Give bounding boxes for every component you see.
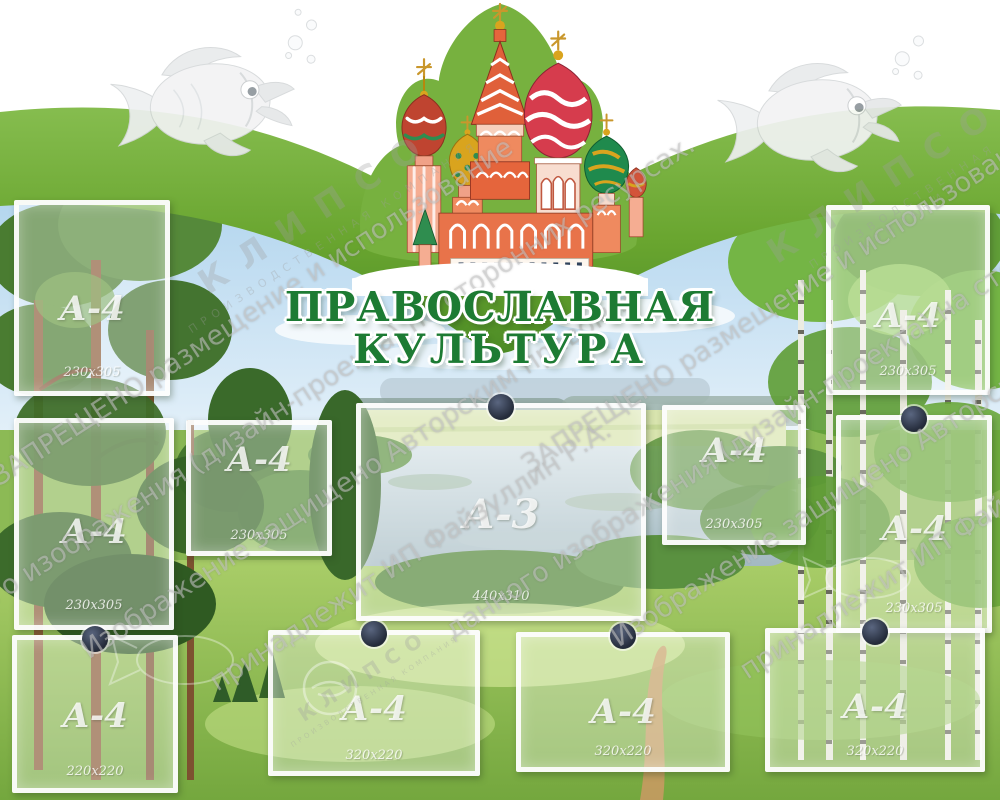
pocket-mid-right: А-4 230x305 bbox=[662, 405, 806, 545]
hole-icon bbox=[488, 394, 514, 420]
hole-icon bbox=[862, 619, 888, 645]
pocket-dimensions: 320x220 bbox=[770, 744, 980, 759]
pocket-dimensions: 220x220 bbox=[17, 764, 173, 779]
pocket-dimensions: 230x305 bbox=[191, 528, 327, 543]
pocket-format-label: А-4 bbox=[667, 431, 801, 471]
stand-design-canvas: А-4 230x305 А-4 230x305 А-4 230x305 А-3 … bbox=[0, 0, 1000, 800]
pocket-top-right: А-4 230x305 bbox=[826, 205, 990, 395]
pocket-dimensions: 320x220 bbox=[273, 748, 475, 763]
pocket-dimensions: 230x305 bbox=[831, 364, 985, 379]
pocket-bottom-3: А-4 320x220 bbox=[516, 632, 730, 772]
pocket-format-label: А-4 bbox=[19, 289, 165, 329]
pocket-format-label: А-4 bbox=[770, 687, 980, 727]
pocket-dimensions: 440x310 bbox=[361, 589, 641, 604]
pocket-dimensions: 230x305 bbox=[667, 517, 801, 532]
pocket-dimensions: 230x305 bbox=[19, 598, 169, 613]
pocket-format-label: А-4 bbox=[831, 296, 985, 336]
pockets-layer: А-4 230x305 А-4 230x305 А-4 230x305 А-3 … bbox=[0, 0, 1000, 800]
pocket-dimensions: 230x305 bbox=[841, 601, 987, 616]
hole-icon bbox=[82, 626, 108, 652]
pocket-format-label: А-4 bbox=[273, 689, 475, 729]
pocket-dimensions: 320x220 bbox=[521, 744, 725, 759]
pocket-bottom-1: А-4 220x220 bbox=[12, 635, 178, 793]
pocket-center-a3: А-3 440x310 bbox=[356, 403, 646, 621]
pocket-mid-left: А-4 230x305 bbox=[186, 420, 332, 556]
pocket-mid-right-tall: А-4 230x305 bbox=[836, 415, 992, 633]
pocket-mid-left-tall: А-4 230x305 bbox=[14, 418, 174, 630]
pocket-format-label: А-4 bbox=[191, 440, 327, 480]
hole-icon bbox=[361, 621, 387, 647]
pocket-bottom-4: А-4 320x220 bbox=[765, 628, 985, 772]
pocket-format-label: А-4 bbox=[19, 512, 169, 552]
pocket-bottom-2: А-4 320x220 bbox=[268, 630, 480, 776]
pocket-format-label: А-4 bbox=[521, 692, 725, 732]
pocket-dimensions: 230x305 bbox=[19, 365, 165, 380]
hole-icon bbox=[610, 623, 636, 649]
pocket-format-label: А-3 bbox=[361, 491, 641, 538]
pocket-top-left: А-4 230x305 bbox=[14, 200, 170, 396]
hole-icon bbox=[901, 406, 927, 432]
pocket-format-label: А-4 bbox=[841, 509, 987, 549]
pocket-format-label: А-4 bbox=[17, 696, 173, 736]
